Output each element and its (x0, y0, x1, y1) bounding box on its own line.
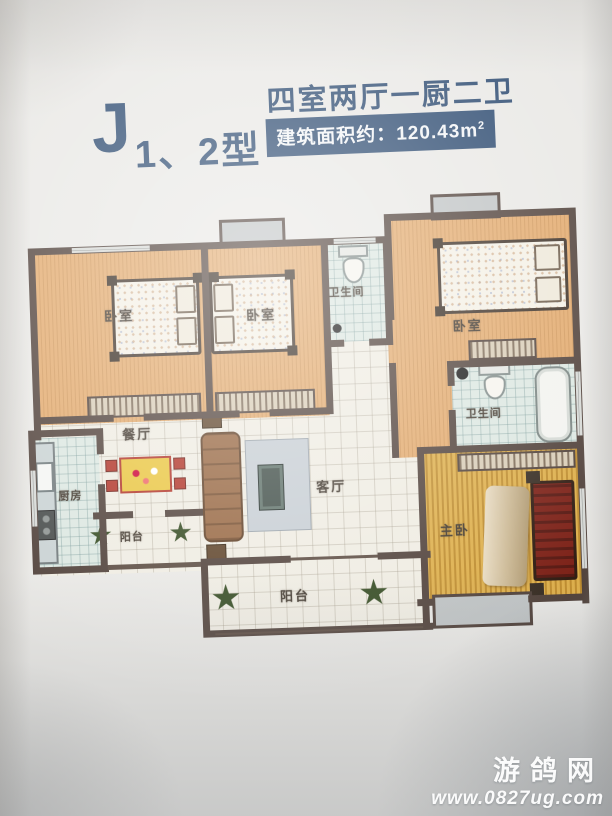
toilet-tank-icon (338, 245, 368, 258)
bed-post (285, 269, 295, 279)
bed-post (435, 306, 445, 316)
sofa-icon (200, 431, 244, 542)
dining-table-icon (119, 456, 172, 494)
bathtub-icon (534, 366, 573, 443)
bed-post (107, 276, 117, 286)
room-label-bedroom-left: 卧室 (104, 305, 135, 325)
chair-icon (106, 480, 118, 492)
chair-icon (173, 457, 185, 469)
nightstand-icon (526, 471, 540, 483)
wall (528, 593, 588, 602)
sink-icon (35, 462, 54, 493)
watermark-site-name: 游鸽网 (431, 749, 604, 788)
wall (324, 340, 344, 348)
wall (165, 509, 203, 517)
area-prefix: 建筑面积约： (276, 124, 397, 150)
floorplan: 卧室 卧室 卧室 卫生间 卫生间 餐厅 客厅 厨房 主卧 阳台 阳台 (20, 193, 593, 654)
stove-icon (37, 510, 56, 541)
master-bed-icon (530, 480, 577, 581)
bed-post (287, 345, 297, 355)
pillow-icon (534, 244, 561, 271)
room-label-balcony-left: 阳台 (120, 528, 145, 545)
floorplan-photo: J 1、2型 四室两厅一厨二卫 建筑面积约：120.43m2 (0, 0, 612, 816)
room-label-bedroom-right: 卧室 (452, 315, 483, 335)
window (574, 371, 583, 435)
room-label-living: 客厅 (316, 476, 347, 496)
title-block: J 1、2型 四室两厅一厨二卫 建筑面积约：120.43m2 (86, 60, 551, 199)
bay-window (432, 591, 533, 628)
area-superscript: 2 (478, 120, 486, 132)
room-label-bathroom-right: 卫生间 (465, 404, 502, 421)
pillow-icon (213, 283, 234, 312)
room-label-bedroom-mid: 卧室 (246, 304, 277, 324)
bed-post (433, 238, 443, 248)
watermark: 游鸽网 www.0827ug.com (431, 749, 604, 810)
bed-post (109, 352, 119, 362)
wall (447, 361, 455, 386)
pillow-icon (175, 285, 196, 314)
chair-icon (105, 460, 117, 472)
closet-icon (482, 485, 529, 586)
wall (369, 338, 393, 346)
watermark-site-url: www.0827ug.com (431, 788, 604, 810)
window (578, 488, 588, 568)
wardrobe (468, 338, 537, 360)
pillow-icon (176, 317, 197, 346)
area-value: 120.43m (396, 120, 479, 144)
coffee-table-icon (257, 464, 285, 511)
room-balcony-left (103, 515, 205, 568)
unit-type-letter: J (90, 92, 132, 164)
room-label-master-bedroom: 主卧 (439, 519, 470, 539)
bed-post (209, 272, 219, 282)
room-label-kitchen: 厨房 (58, 487, 83, 504)
unit-type-suffix: 1、2型 (134, 118, 262, 178)
pillow-icon (214, 315, 235, 344)
room-label-dining: 餐厅 (122, 423, 153, 443)
pillow-icon (535, 276, 562, 303)
wall (96, 428, 104, 454)
room-label-bathroom-top: 卫生间 (328, 283, 365, 300)
window (334, 236, 376, 244)
room-label-balcony-bottom: 阳台 (280, 585, 311, 605)
room-balcony-bottom (205, 554, 429, 635)
area-badge: 建筑面积约：120.43m2 (266, 110, 497, 158)
chair-icon (174, 477, 186, 489)
